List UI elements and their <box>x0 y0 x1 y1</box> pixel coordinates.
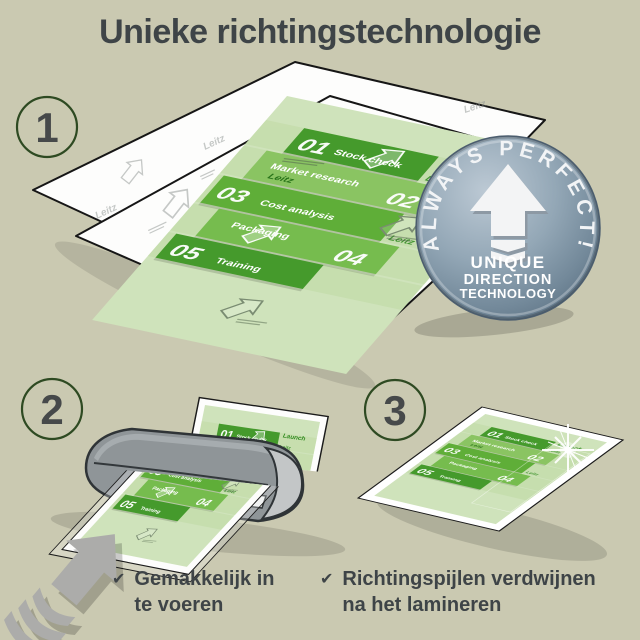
badge-line-unique: UNIQUE <box>470 253 545 272</box>
page-title: Unieke richtingstechnologie <box>0 13 640 52</box>
step-number-2: 2 <box>40 386 63 433</box>
infographic-stage: 01 Stock check Market research 02 Leitz … <box>0 0 640 640</box>
step-number-1: 1 <box>35 104 58 151</box>
bullet-line: te voeren <box>134 592 274 618</box>
bullet-easy-feed: ✔ Gemakkelijk in te voeren <box>112 566 274 618</box>
step-number-3: 3 <box>383 387 406 434</box>
bullet-arrows-disappear: ✔ Richtingspijlen verdwijnen na het lami… <box>320 566 596 618</box>
step-circle-2: 2 <box>22 379 82 439</box>
check-icon: ✔ <box>320 566 333 618</box>
check-icon: ✔ <box>112 566 125 618</box>
step-circle-3: 3 <box>365 380 425 440</box>
always-perfect-badge: ALWAYS PERFECT! UNIQUE DIRECTION TECHNOL… <box>413 136 600 343</box>
bullet-line: na het lamineren <box>342 592 595 618</box>
bullet-line: Richtingspijlen verdwijnen <box>342 566 595 592</box>
badge-line-technology: TECHNOLOGY <box>460 286 557 301</box>
bullet-text: Richtingspijlen verdwijnen na het lamine… <box>342 566 595 618</box>
step-circle-1: 1 <box>17 97 77 157</box>
bullet-text: Gemakkelijk in te voeren <box>134 566 274 618</box>
bullet-line: Gemakkelijk in <box>134 566 274 592</box>
